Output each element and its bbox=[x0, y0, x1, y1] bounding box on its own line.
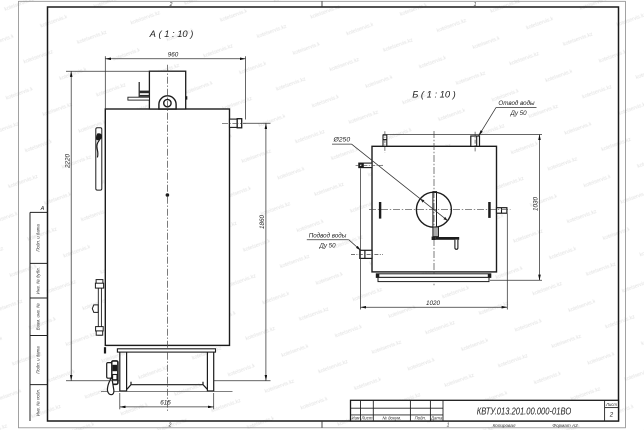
svg-text:615: 615 bbox=[160, 400, 171, 407]
svg-text:Подвод воды: Подвод воды bbox=[309, 233, 347, 240]
svg-text:1030: 1030 bbox=[533, 197, 540, 212]
svg-text:Дата: Дата bbox=[430, 416, 443, 421]
svg-text:2: 2 bbox=[169, 2, 173, 8]
svg-text:Формат А3: Формат А3 bbox=[552, 423, 578, 428]
svg-text:А: А bbox=[40, 206, 45, 212]
svg-text:2220: 2220 bbox=[64, 154, 71, 170]
svg-text:Инв. № дубл.: Инв. № дубл. bbox=[36, 267, 41, 294]
svg-text:Лист: Лист bbox=[605, 402, 617, 407]
svg-text:1: 1 bbox=[474, 2, 477, 8]
svg-text:Взам. инв. №: Взам. инв. № bbox=[36, 303, 41, 330]
svg-text:1020: 1020 bbox=[426, 300, 441, 307]
svg-text:Копировал: Копировал bbox=[493, 423, 516, 428]
svg-text:Изм: Изм bbox=[352, 416, 360, 421]
svg-text:А ( 1 : 10 ): А ( 1 : 10 ) bbox=[149, 28, 194, 39]
svg-text:Подп. и дата: Подп. и дата bbox=[36, 346, 41, 374]
svg-text:КВТУ.013.201.00.000-01ВО: КВТУ.013.201.00.000-01ВО bbox=[477, 406, 572, 418]
svg-text:№ докум.: № докум. bbox=[382, 416, 401, 421]
svg-text:Ду 50: Ду 50 bbox=[318, 243, 336, 250]
svg-text:Отвод воды: Отвод воды bbox=[498, 100, 535, 107]
svg-text:Ду 50: Ду 50 bbox=[509, 110, 527, 117]
svg-text:Б ( 1 : 10 ): Б ( 1 : 10 ) bbox=[412, 88, 456, 99]
svg-text:Подп. и дата: Подп. и дата bbox=[36, 224, 41, 252]
svg-text:2: 2 bbox=[609, 412, 614, 419]
svg-text:Ø250: Ø250 bbox=[332, 137, 350, 144]
svg-text:Лист: Лист bbox=[360, 416, 372, 421]
svg-text:Подп.: Подп. bbox=[415, 416, 426, 421]
svg-text:960: 960 bbox=[168, 52, 179, 59]
svg-text:1860: 1860 bbox=[259, 215, 266, 230]
svg-text:1: 1 bbox=[447, 423, 450, 429]
svg-text:Инв. № подл.: Инв. № подл. bbox=[36, 389, 41, 416]
svg-text:2: 2 bbox=[168, 423, 172, 429]
